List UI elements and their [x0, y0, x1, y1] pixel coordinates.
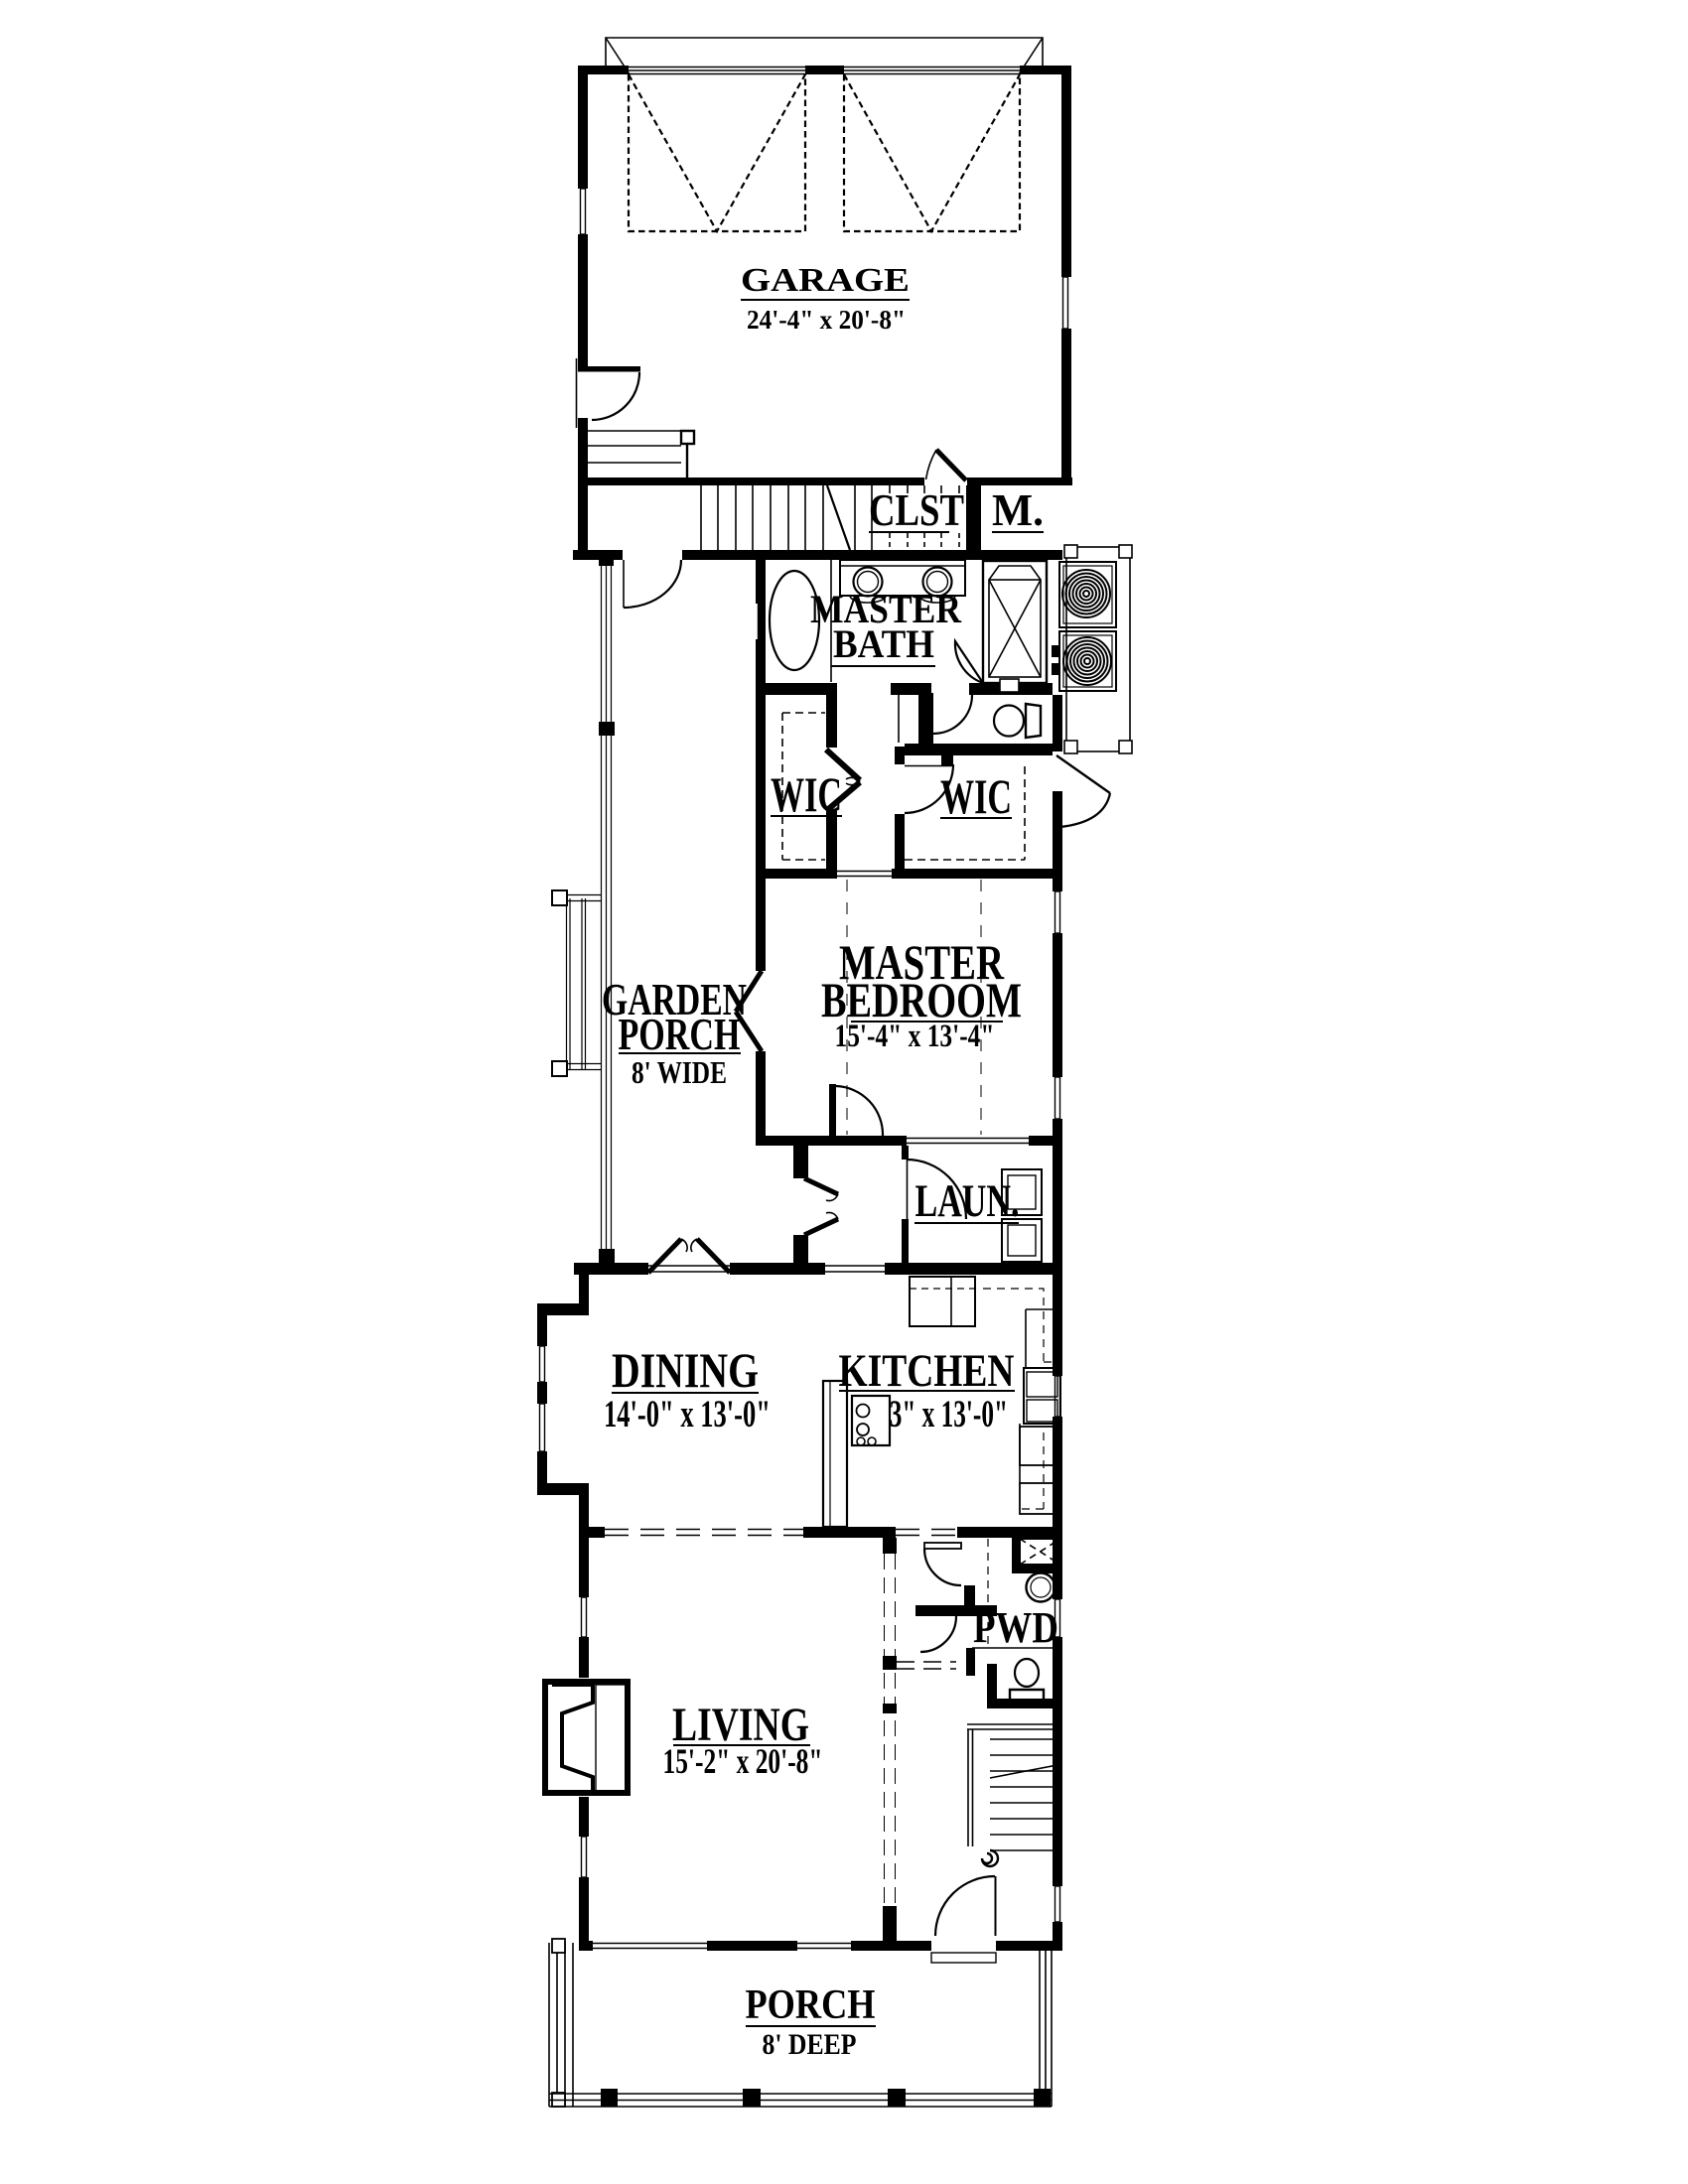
svg-text:KITCHEN: KITCHEN — [839, 1345, 1015, 1397]
svg-text:WIC: WIC — [771, 766, 842, 822]
svg-text:PORCH: PORCH — [619, 1009, 741, 1059]
svg-text:15'-4" x 13'-4": 15'-4" x 13'-4" — [835, 1019, 995, 1054]
svg-text:BATH: BATH — [833, 621, 934, 666]
svg-text:PWD: PWD — [973, 1603, 1058, 1652]
svg-text:GARAGE: GARAGE — [741, 262, 910, 299]
svg-text:CLST: CLST — [869, 484, 964, 535]
svg-text:WIC: WIC — [940, 768, 1012, 824]
svg-text:24'-4" x 20'-8": 24'-4" x 20'-8" — [747, 305, 906, 335]
svg-text:M.: M. — [992, 484, 1044, 535]
svg-text:15'-2" x 20'-8": 15'-2" x 20'-8" — [663, 1741, 823, 1781]
svg-text:PORCH: PORCH — [746, 1982, 876, 2028]
svg-text:14'-0" x 13'-0": 14'-0" x 13'-0" — [604, 1393, 771, 1435]
svg-text:8' WIDE: 8' WIDE — [632, 1054, 727, 1090]
svg-text:DINING: DINING — [612, 1342, 759, 1398]
svg-text:8' DEEP: 8' DEEP — [763, 2028, 857, 2061]
